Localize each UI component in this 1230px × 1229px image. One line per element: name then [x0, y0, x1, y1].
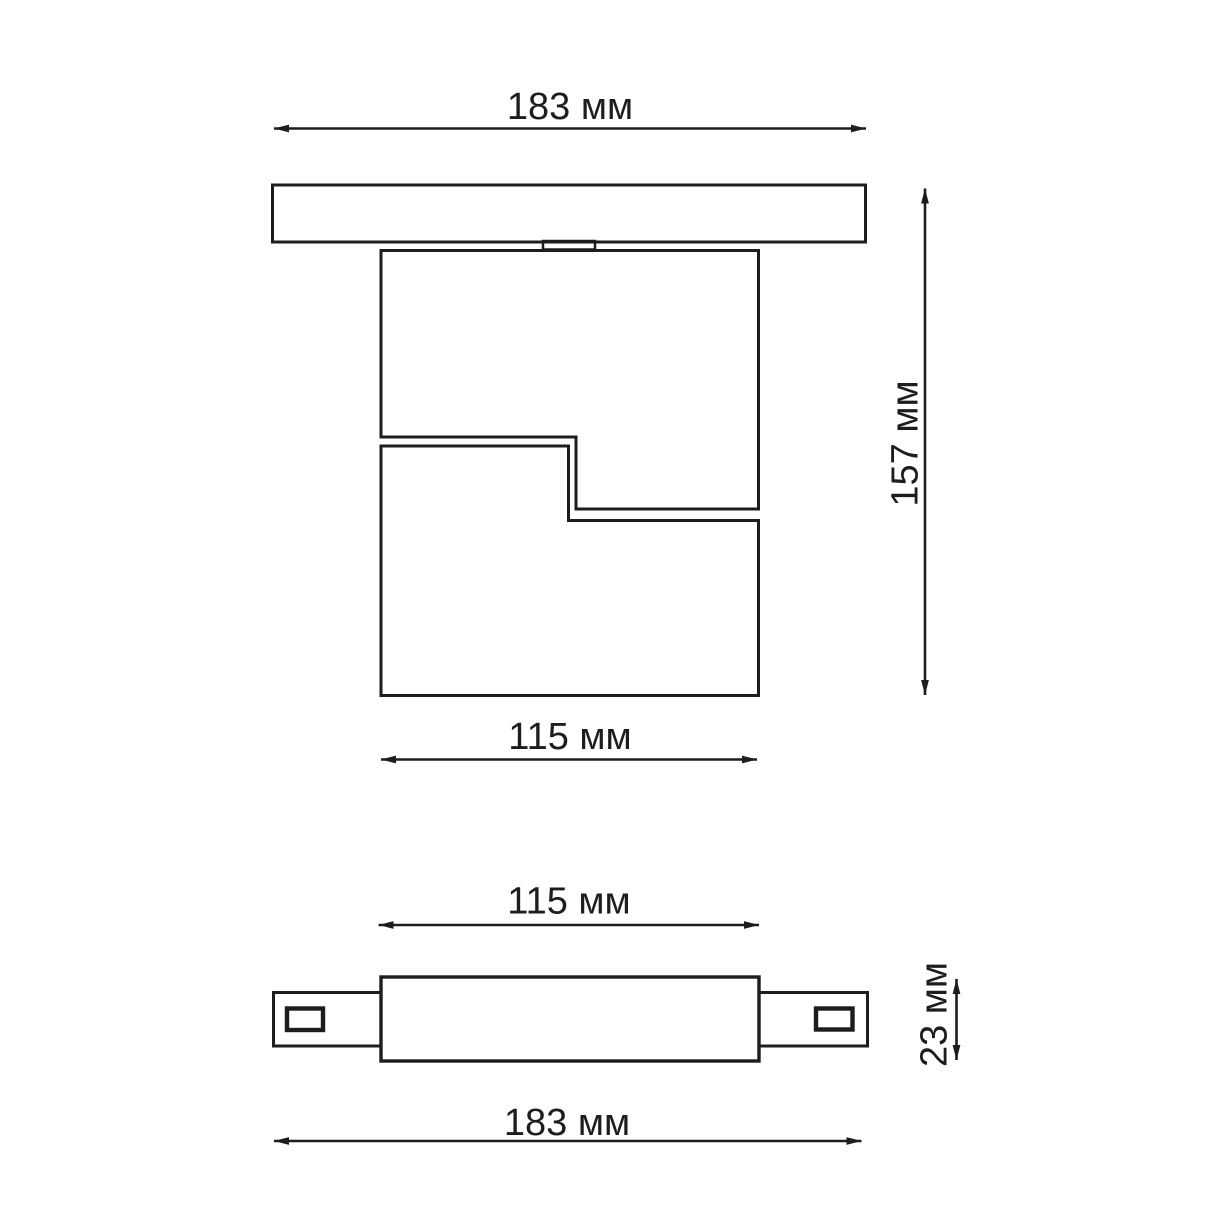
svg-text:183 мм: 183 мм	[504, 1102, 630, 1144]
svg-text:115 мм: 115 мм	[507, 881, 630, 923]
svg-text:23 мм: 23 мм	[914, 962, 956, 1067]
svg-text:115 мм: 115 мм	[508, 716, 631, 758]
svg-text:157 мм: 157 мм	[885, 380, 927, 506]
svg-text:183 мм: 183 мм	[507, 86, 633, 128]
